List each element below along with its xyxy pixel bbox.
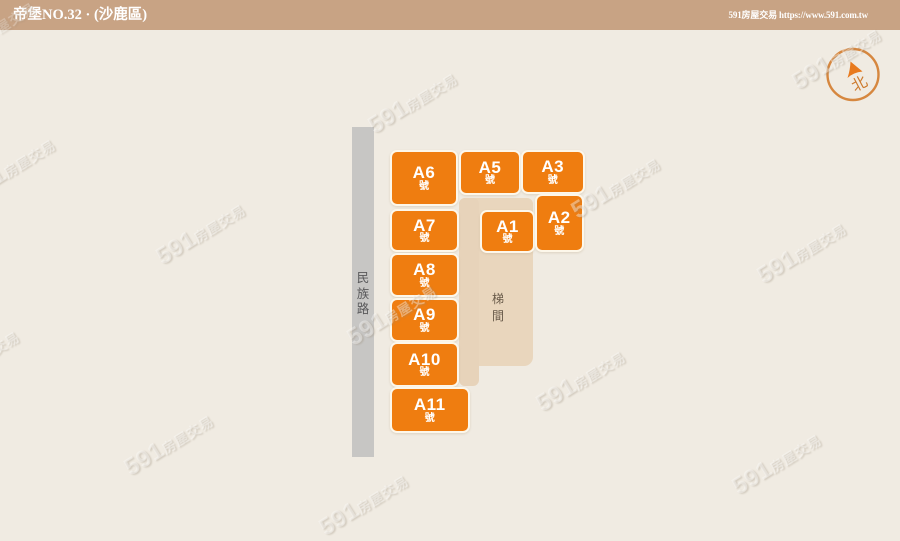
svg-text:北: 北 bbox=[848, 72, 871, 95]
